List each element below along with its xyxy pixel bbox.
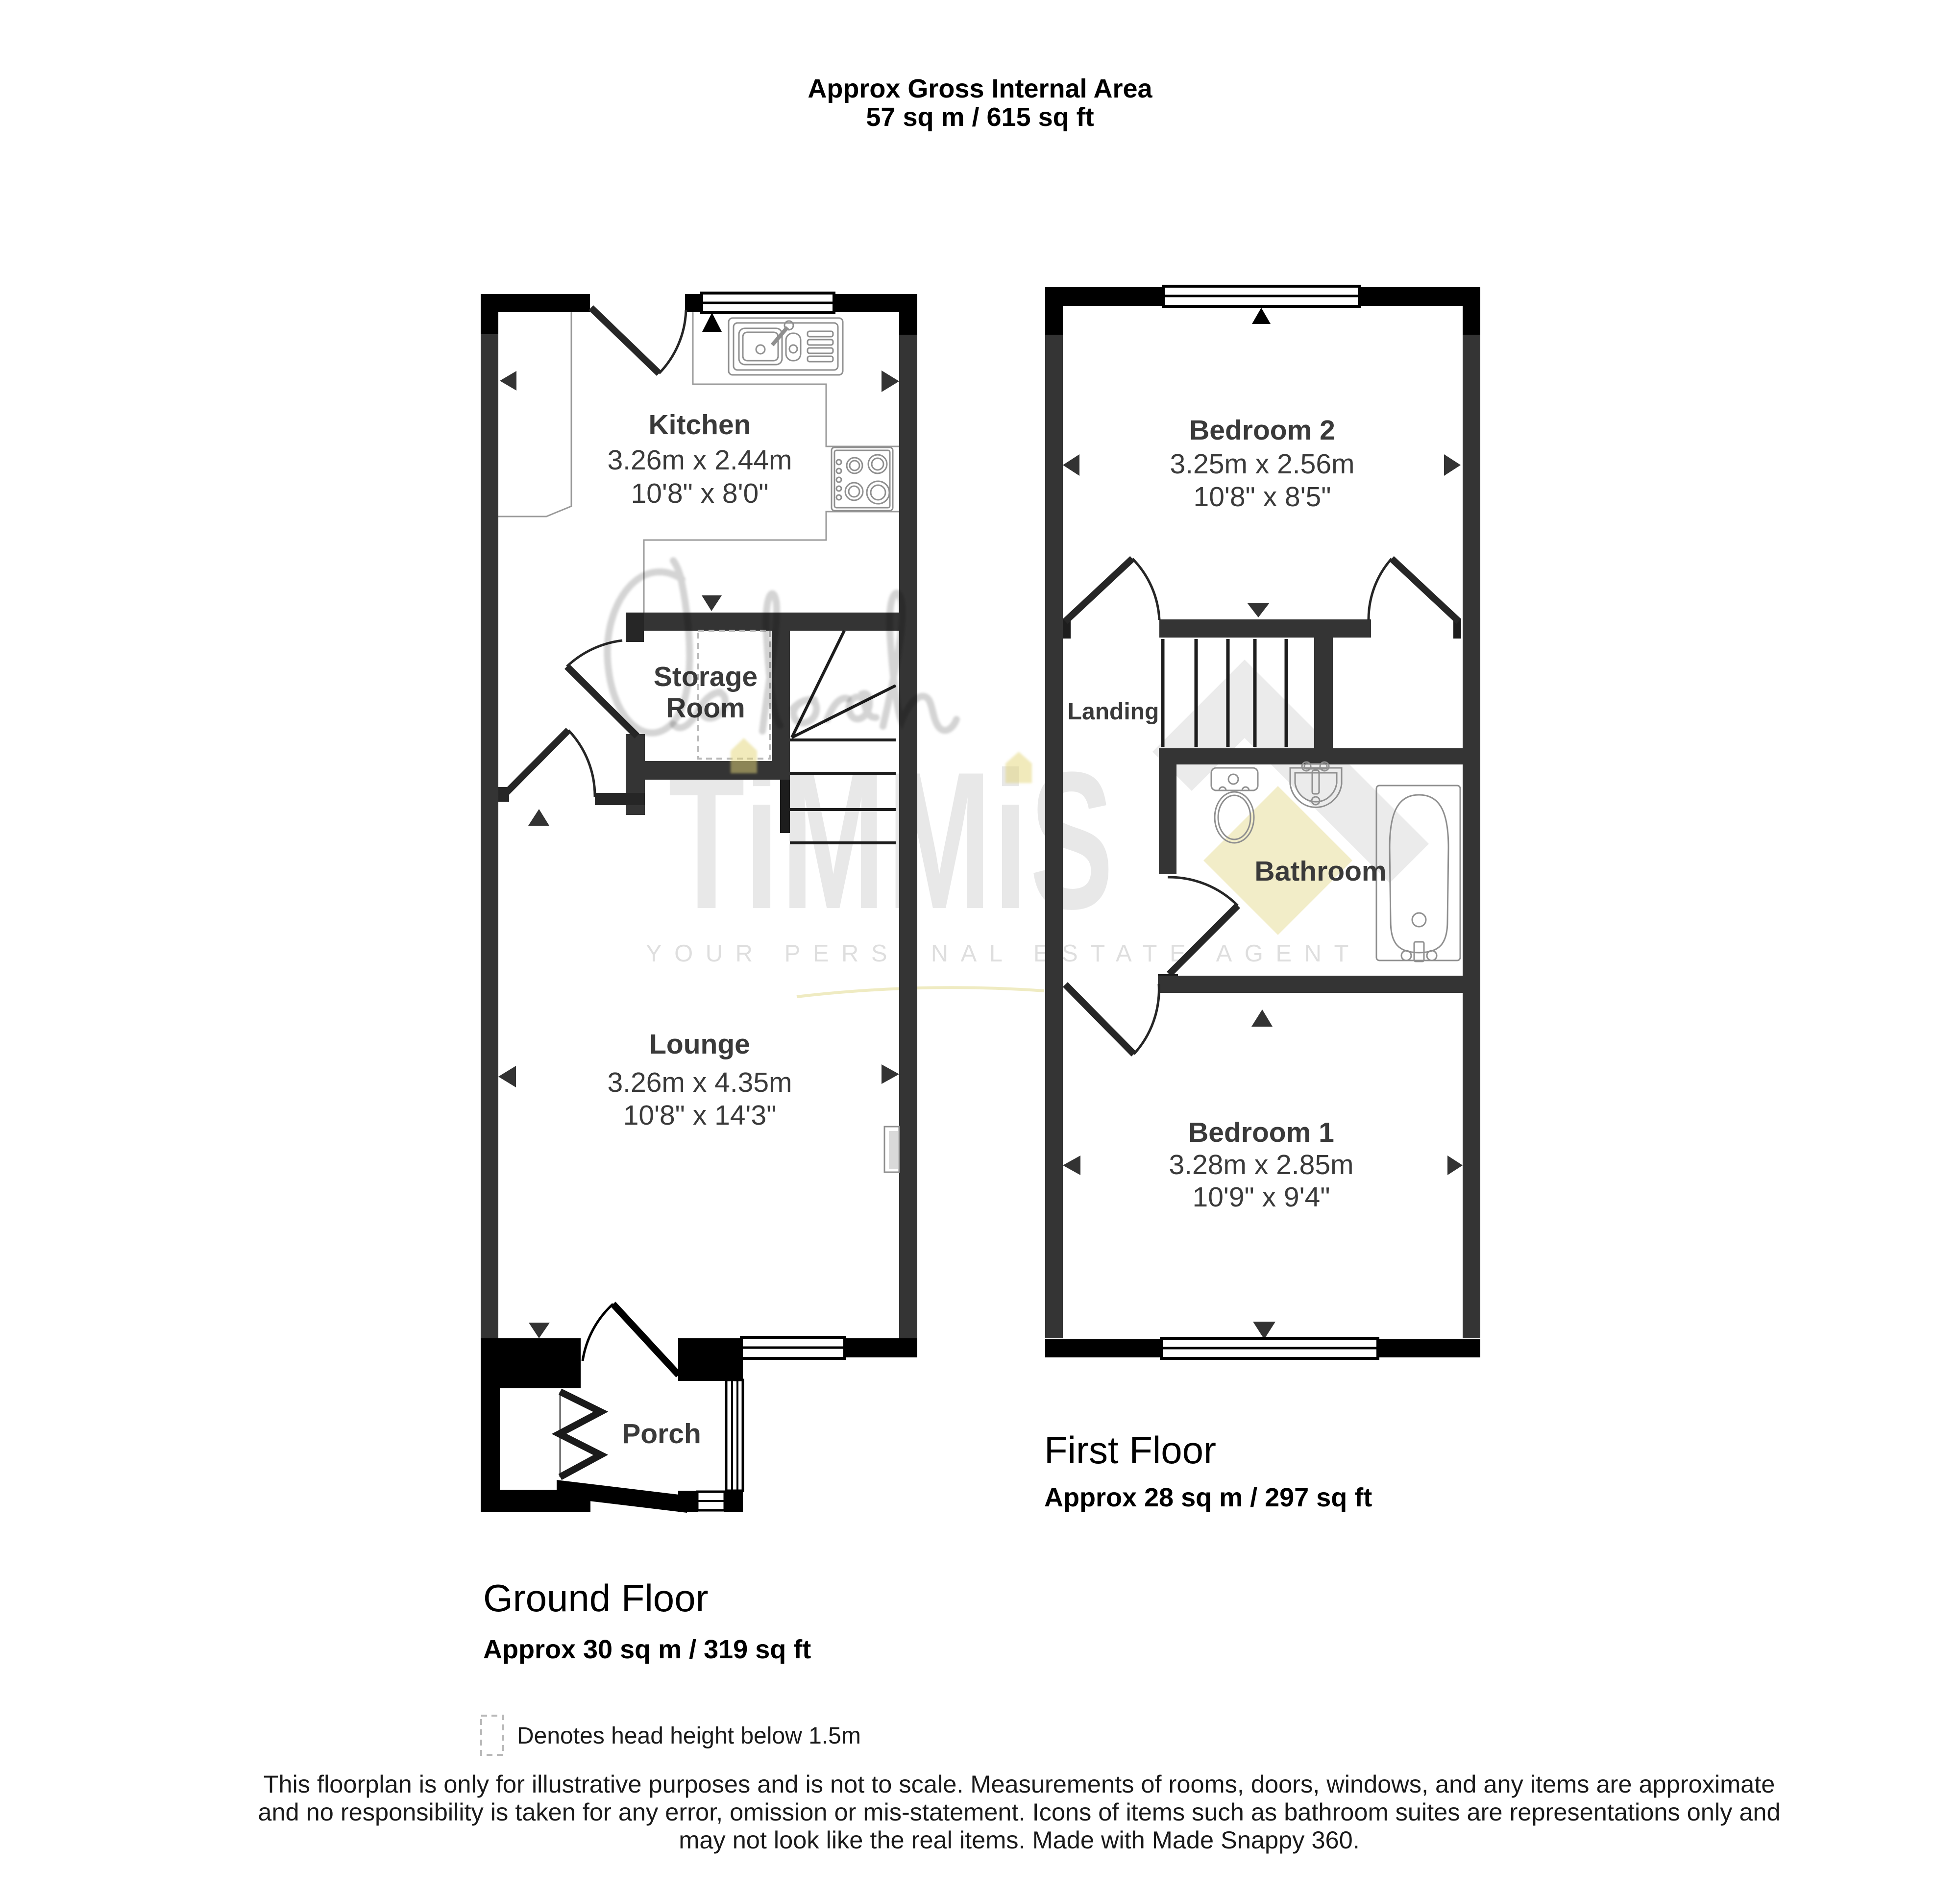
svg-text:Porch: Porch: [622, 1418, 701, 1450]
svg-text:Storage: Storage: [654, 661, 758, 692]
svg-text:YOUR PERSONAL ESTATE AGENT: YOUR PERSONAL ESTATE AGENT: [646, 940, 1361, 967]
svg-text:Bathroom: Bathroom: [1254, 856, 1386, 887]
svg-text:Ground Floor: Ground Floor: [483, 1576, 709, 1620]
svg-text:10'9" x 9'4": 10'9" x 9'4": [1193, 1181, 1330, 1213]
svg-text:and no responsibility is taken: and no responsibility is taken for any e…: [258, 1798, 1780, 1826]
svg-text:57 sq m / 615 sq ft: 57 sq m / 615 sq ft: [866, 102, 1094, 132]
svg-text:Landing: Landing: [1068, 699, 1159, 725]
svg-text:Bedroom 2: Bedroom 2: [1189, 415, 1335, 446]
svg-text:10'8" x 8'5": 10'8" x 8'5": [1194, 481, 1331, 513]
svg-text:3.26m x 4.35m: 3.26m x 4.35m: [607, 1067, 792, 1098]
svg-text:Approx 28 sq m / 297 sq ft: Approx 28 sq m / 297 sq ft: [1044, 1483, 1372, 1512]
svg-text:10'8" x 8'0": 10'8" x 8'0": [631, 478, 769, 509]
svg-text:3.28m x 2.85m: 3.28m x 2.85m: [1169, 1149, 1353, 1181]
svg-text:Lounge: Lounge: [649, 1029, 750, 1060]
svg-text:10'8" x 14'3": 10'8" x 14'3": [623, 1100, 777, 1131]
svg-text:This floorplan is only for ill: This floorplan is only for illustrative …: [264, 1770, 1775, 1798]
svg-text:may not look like the real ite: may not look like the real items. Made w…: [679, 1826, 1359, 1854]
svg-text:Approx Gross Internal Area: Approx Gross Internal Area: [808, 74, 1152, 103]
svg-text:3.26m x 2.44m: 3.26m x 2.44m: [607, 444, 792, 476]
svg-text:Approx 30 sq m / 319 sq ft: Approx 30 sq m / 319 sq ft: [483, 1635, 811, 1664]
svg-text:Bedroom 1: Bedroom 1: [1188, 1117, 1334, 1148]
svg-text:First Floor: First Floor: [1044, 1428, 1216, 1472]
svg-text:3.25m x 2.56m: 3.25m x 2.56m: [1170, 448, 1354, 480]
svg-text:Denotes head height below 1.5m: Denotes head height below 1.5m: [517, 1723, 861, 1749]
svg-text:Kitchen: Kitchen: [648, 409, 751, 441]
